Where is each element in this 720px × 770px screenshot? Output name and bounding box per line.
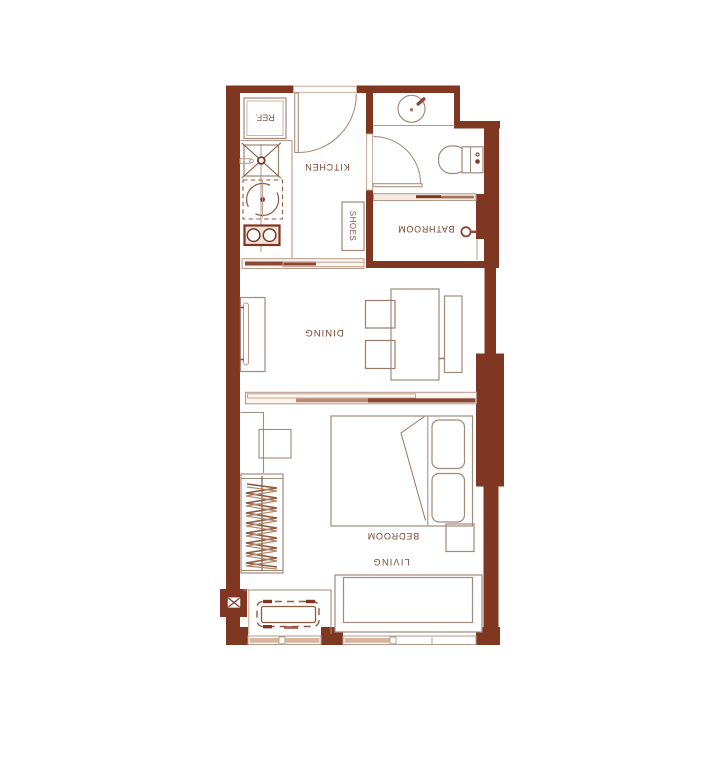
svg-text:DINING: DINING (304, 327, 343, 338)
svg-text:REF.: REF. (255, 113, 275, 123)
svg-text:BATHROOM: BATHROOM (398, 224, 455, 234)
svg-text:BEDROOM: BEDROOM (367, 531, 419, 541)
svg-text:KITCHEN: KITCHEN (304, 162, 349, 172)
svg-text:SHOES: SHOES (348, 211, 357, 242)
svg-text:LIVING: LIVING (372, 557, 409, 567)
